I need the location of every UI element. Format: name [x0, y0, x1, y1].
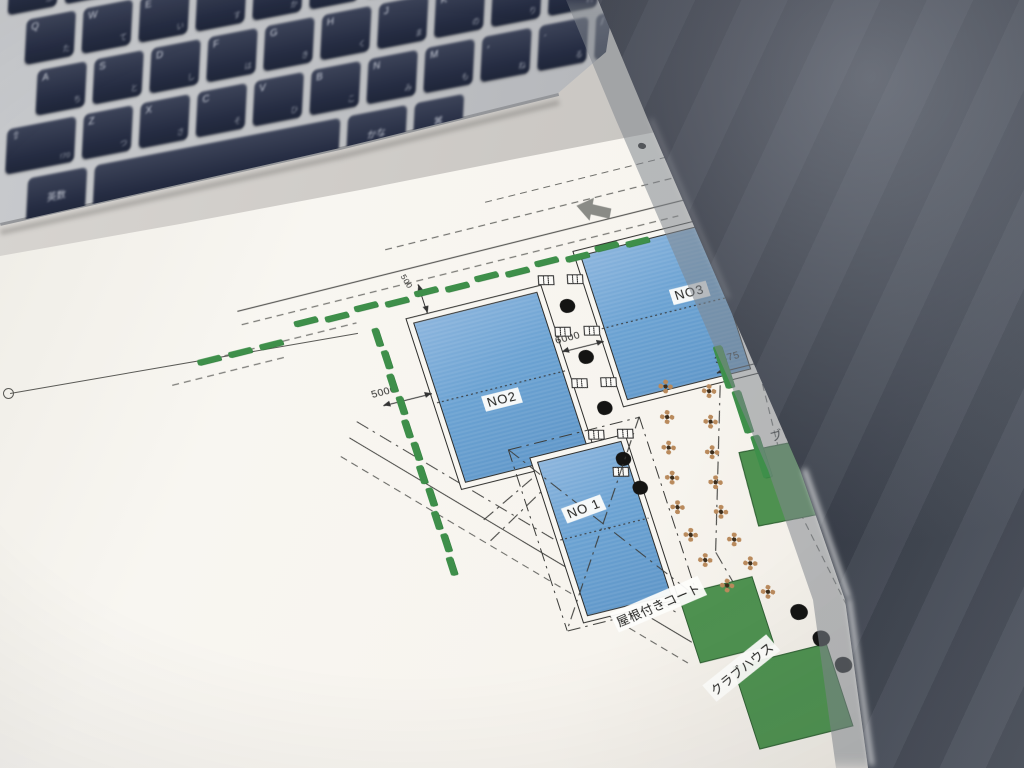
- key-kana-legend: す: [233, 9, 241, 22]
- key-legend: D: [156, 49, 164, 62]
- flower-icon: [658, 379, 672, 394]
- key-legend: K: [440, 0, 447, 7]
- flower-icon: [727, 532, 741, 547]
- key-kana-legend: き: [301, 48, 309, 61]
- key-legend: G: [270, 27, 278, 40]
- keyboard-key: 2ふ: [8, 0, 59, 15]
- keyboard-key: Jま: [377, 0, 428, 49]
- keyboard-key: ⌘: [413, 94, 464, 149]
- bench-icon: [571, 378, 588, 388]
- keyboard-key: ⇧!70: [5, 116, 76, 175]
- key-legend: M: [430, 49, 439, 62]
- key-kana-legend: ひ: [290, 103, 298, 116]
- key-kana-legend: か: [290, 0, 298, 10]
- flower-icon: [708, 475, 722, 490]
- keyboard-key: Qた: [24, 10, 75, 65]
- key-legend: A: [42, 71, 49, 84]
- keyboard-key: Tか: [252, 0, 303, 21]
- bench-icon: [554, 327, 571, 337]
- flower-icon: [660, 410, 674, 425]
- flower-icon: [705, 445, 719, 460]
- keyboard-key: Bこ: [309, 61, 360, 116]
- key-kana-legend: て: [119, 31, 127, 44]
- key-kana-legend: !70: [60, 150, 71, 161]
- bench-icon: [600, 377, 617, 387]
- survey-marker-circle: [3, 388, 14, 399]
- keyboard-key: Xさ: [139, 94, 190, 149]
- bench-icon: [583, 326, 600, 336]
- key-kana-legend: こ: [347, 92, 355, 105]
- key-legend: Q: [31, 20, 39, 33]
- key-legend: X: [145, 104, 152, 117]
- key-legend: H: [327, 16, 335, 29]
- keyboard-key: Eい: [138, 0, 189, 43]
- keyboard-key: Nみ: [366, 50, 417, 105]
- key-legend: ,: [487, 39, 490, 51]
- key-kana-legend: た: [62, 42, 70, 55]
- flower-icon: [661, 440, 675, 455]
- keyboard-key: Gき: [263, 17, 314, 72]
- key-legend: W: [88, 9, 98, 22]
- key-kana-legend: は: [244, 59, 252, 72]
- flower-icon: [743, 556, 757, 571]
- key-kana-legend: そ: [233, 114, 241, 127]
- key-kana-legend: ふ: [46, 0, 54, 5]
- key-kana-legend: る: [575, 48, 583, 61]
- key-legend: S: [99, 60, 106, 73]
- keyboard-key: Kの: [434, 0, 485, 38]
- key-kana-legend: い: [176, 20, 184, 33]
- flower-icon: [714, 504, 728, 519]
- keyboard-key: Dし: [149, 39, 200, 94]
- flower-icon: [702, 384, 716, 399]
- flower-icon: [665, 470, 679, 485]
- key-legend: Z: [88, 115, 95, 127]
- key-kana-legend: り: [529, 4, 537, 17]
- desk-photo-scene: NO2 NO3 NO 1 屋根付きコート 5000 6000 3375 500: [0, 0, 1024, 768]
- keyboard-key: Hく: [320, 6, 371, 61]
- key-kana-legend: の: [472, 15, 480, 28]
- key-kana-legend: ね: [518, 59, 526, 72]
- keyboard-key: Cそ: [196, 83, 247, 138]
- key-legend: E: [145, 0, 152, 11]
- key-kana-legend: ま: [415, 26, 423, 39]
- key-kana-legend: し: [187, 71, 195, 84]
- flower-icon: [698, 553, 712, 568]
- flower-icon: [684, 528, 698, 543]
- bench-icon: [588, 430, 605, 440]
- key-legend: ⇧: [12, 130, 21, 143]
- keyboard-key: ,ね: [480, 28, 531, 83]
- keyboard-key: Sと: [92, 50, 143, 105]
- keyboard-key: Wて: [81, 0, 132, 54]
- keyboard-key: Mも: [423, 39, 474, 94]
- key-legend: ⌘: [413, 94, 464, 149]
- flower-icon: [720, 578, 734, 593]
- key-kana-legend: み: [404, 81, 412, 94]
- keyboard-key: Rす: [195, 0, 246, 32]
- key-kana-legend: く: [358, 37, 366, 50]
- key-kana-legend: さ: [177, 126, 185, 139]
- keyboard-key: Lり: [491, 0, 542, 27]
- key-kana-legend: も: [461, 70, 469, 83]
- keyboard-key: Vひ: [252, 72, 303, 127]
- key-legend: F: [213, 38, 220, 50]
- bench-icon: [538, 275, 555, 285]
- key-legend: N: [373, 60, 381, 73]
- key-legend: J: [384, 5, 390, 17]
- flower-icon: [703, 414, 717, 429]
- key-legend: V: [259, 82, 266, 95]
- key-kana-legend: つ: [120, 137, 128, 150]
- key-legend: .: [544, 28, 547, 40]
- flower-icon: [761, 585, 775, 600]
- bench-icon: [567, 274, 584, 284]
- key-kana-legend: と: [130, 82, 138, 95]
- key-legend: B: [316, 71, 323, 84]
- key-kana-legend: ち: [73, 93, 81, 106]
- keyboard-key: Aち: [35, 61, 86, 116]
- key-legend: C: [202, 93, 210, 106]
- flower-icon: [670, 500, 684, 515]
- keyboard-key: Zつ: [82, 105, 133, 160]
- keyboard-key: Fは: [206, 28, 257, 83]
